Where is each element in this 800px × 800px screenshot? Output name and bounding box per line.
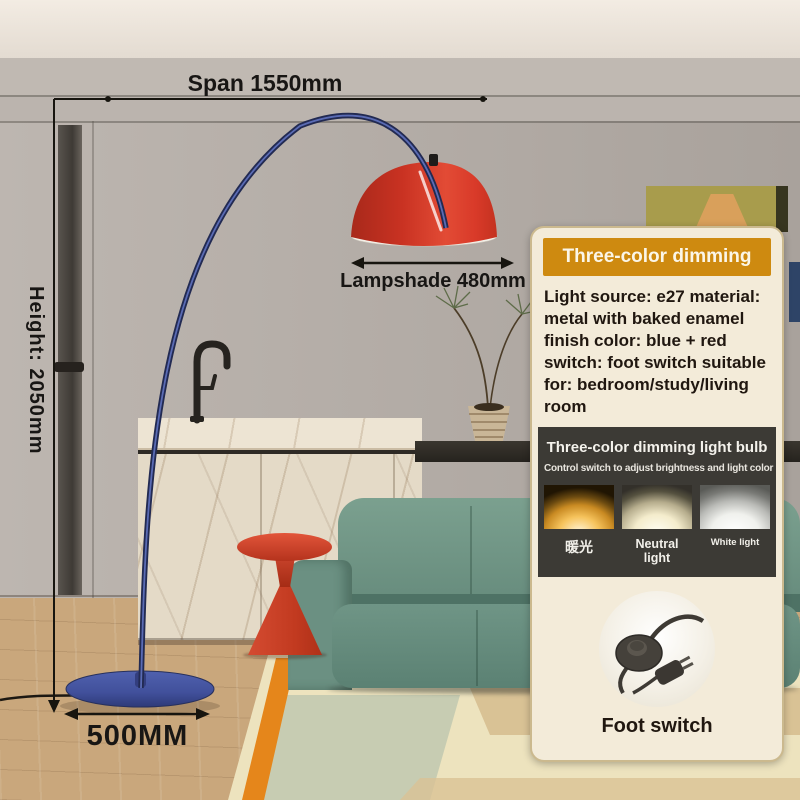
base-dimension-label: 500MM bbox=[55, 720, 220, 753]
lampshade-dimension-label: Lampshade 480mm bbox=[338, 270, 528, 293]
warm-light-swatch bbox=[544, 485, 614, 529]
span-dimension-label: Span 1550mm bbox=[140, 70, 390, 97]
product-listing-image: Span 1550mm Height: 2050mm Lampshade 480… bbox=[0, 0, 800, 800]
light-mode-labels: 暖光 Neutral light White light bbox=[544, 537, 770, 565]
foot-switch-illustration bbox=[599, 591, 715, 707]
product-specs-text: Light source: e27 material: metal with b… bbox=[544, 286, 770, 419]
white-light-swatch bbox=[700, 485, 770, 529]
light-mode-swatches bbox=[544, 485, 770, 529]
product-info-panel: Three-color dimming Light source: e27 ma… bbox=[530, 226, 784, 762]
dimming-section: Three-color dimming light bulb Control s… bbox=[538, 427, 776, 577]
foot-switch-label: Foot switch bbox=[532, 715, 782, 738]
foot-switch-photo bbox=[599, 591, 715, 707]
neutral-light-label: Neutral light bbox=[622, 537, 692, 565]
panel-header: Three-color dimming bbox=[543, 238, 771, 276]
white-light-label: White light bbox=[700, 537, 770, 565]
neutral-light-swatch bbox=[622, 485, 692, 529]
height-dimension-label: Height: 2050mm bbox=[24, 286, 47, 455]
dimming-section-subtitle: Control switch to adjust brightness and … bbox=[544, 463, 770, 474]
dimming-section-title: Three-color dimming light bulb bbox=[544, 439, 770, 456]
warm-light-label: 暖光 bbox=[544, 537, 614, 565]
